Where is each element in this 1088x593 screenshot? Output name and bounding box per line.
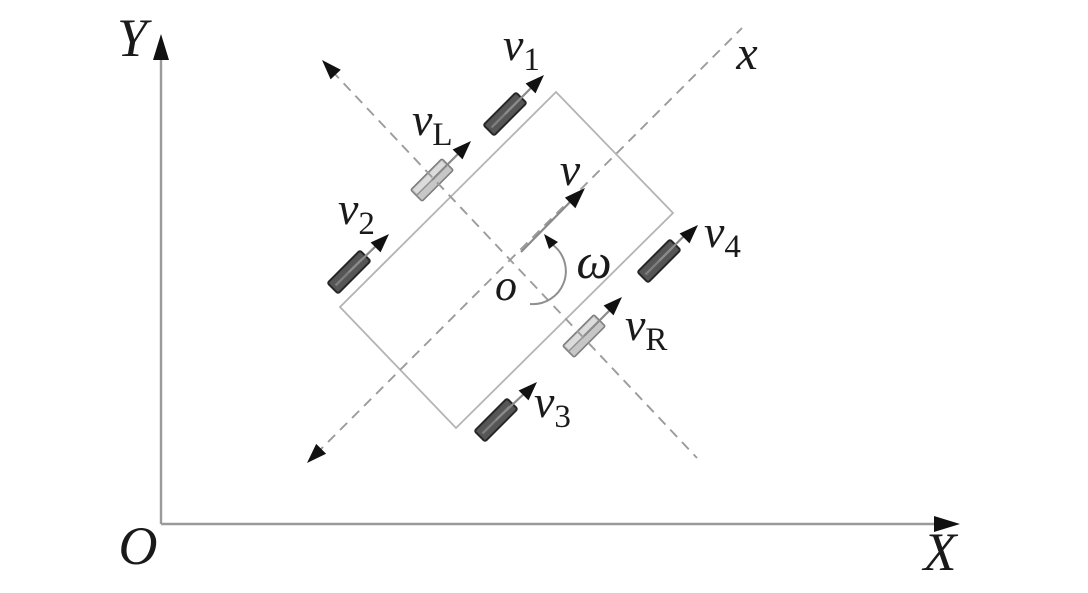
v3-label-base: v [534, 376, 555, 427]
v4-label: v4 [704, 206, 741, 265]
v-label: v [560, 144, 581, 195]
v2-label: v2 [338, 183, 375, 242]
v3-vector [496, 382, 537, 420]
v1-label-base: v [503, 19, 524, 70]
omega-arc-line [530, 245, 566, 304]
omega-label: ω [576, 233, 611, 289]
robot-body-outline [340, 92, 673, 428]
v1-label-sub: 1 [523, 42, 540, 78]
v-arrow-shaft [521, 200, 572, 252]
vR-label: vR [625, 299, 667, 358]
body-x-axis-arrowhead-icon [307, 444, 326, 463]
y-axis-arrowhead-icon [153, 34, 169, 60]
v3-label-sub: 3 [554, 399, 571, 435]
vR-label-base: v [625, 299, 646, 350]
body-x-axis-label: x [735, 27, 757, 80]
robot-kinematics-diagram: Y X O [0, 0, 1088, 593]
v2-label-base: v [338, 183, 359, 234]
vL-label-sub: L [432, 117, 452, 153]
robot-kinematics-figure: Y X O [0, 0, 1088, 593]
v2-label-sub: 2 [358, 206, 375, 242]
body-origin-label: o [495, 261, 517, 310]
v3-label: v3 [534, 376, 571, 435]
x-axis-label: X [922, 522, 959, 582]
v4-label-base: v [704, 206, 725, 257]
vL-label: vL [412, 94, 453, 153]
v4-arrowhead-icon [680, 225, 698, 243]
global-frame: Y X O [117, 8, 960, 582]
vR-label-sub: R [645, 322, 667, 358]
vL-label-base: v [412, 94, 433, 145]
angular-velocity-arc [530, 234, 566, 304]
vR-vector [584, 297, 622, 336]
v4-vector [659, 225, 698, 261]
y-axis-label: Y [117, 8, 152, 68]
global-origin-label: O [119, 516, 158, 576]
v1-label: v1 [503, 19, 540, 78]
v4-label-sub: 4 [724, 229, 741, 265]
v1-vector [505, 75, 544, 114]
